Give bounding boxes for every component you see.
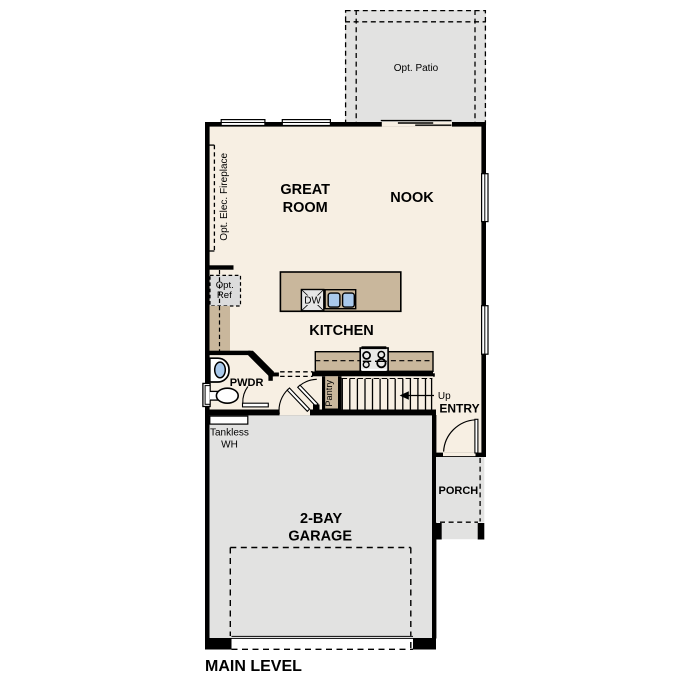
svg-text:ENTRY: ENTRY (439, 401, 479, 415)
svg-text:Opt. Elec. Fireplace: Opt. Elec. Fireplace (219, 152, 230, 240)
svg-text:Pantry: Pantry (324, 380, 334, 407)
svg-text:ROOM: ROOM (283, 200, 328, 216)
svg-text:Tankless: Tankless (210, 428, 249, 439)
svg-text:GREAT: GREAT (280, 182, 330, 198)
svg-text:DW: DW (304, 296, 321, 307)
svg-text:KITCHEN: KITCHEN (309, 323, 373, 339)
svg-text:GARAGE: GARAGE (288, 528, 352, 544)
svg-text:PORCH: PORCH (439, 485, 479, 497)
svg-text:2-BAY: 2-BAY (300, 511, 343, 527)
svg-text:WH: WH (221, 440, 238, 451)
svg-text:MAIN LEVEL: MAIN LEVEL (205, 658, 302, 675)
svg-text:PWDR: PWDR (230, 377, 264, 389)
svg-text:Opt. Patio: Opt. Patio (394, 63, 439, 74)
svg-text:NOOK: NOOK (390, 190, 434, 206)
